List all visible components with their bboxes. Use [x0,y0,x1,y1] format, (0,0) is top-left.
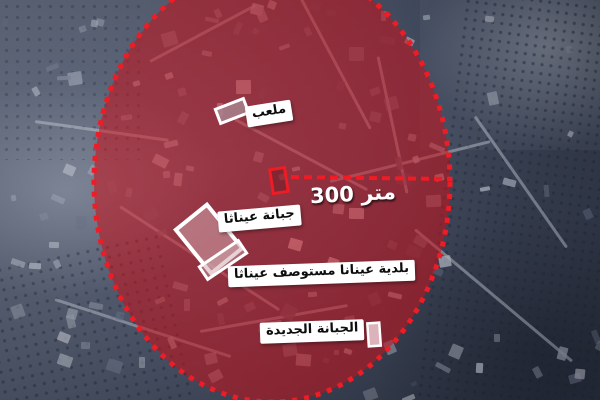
impact-point-marker [270,167,289,193]
new-cemetery-marker [367,323,381,347]
radius-measurement-label: 300 متر [309,180,396,208]
map-canvas: ملعب جبانة عيناثا بلدية عينانا مستوصف عي… [0,0,600,400]
new-cemetery-label: الجبانة الجديدة [260,319,365,344]
